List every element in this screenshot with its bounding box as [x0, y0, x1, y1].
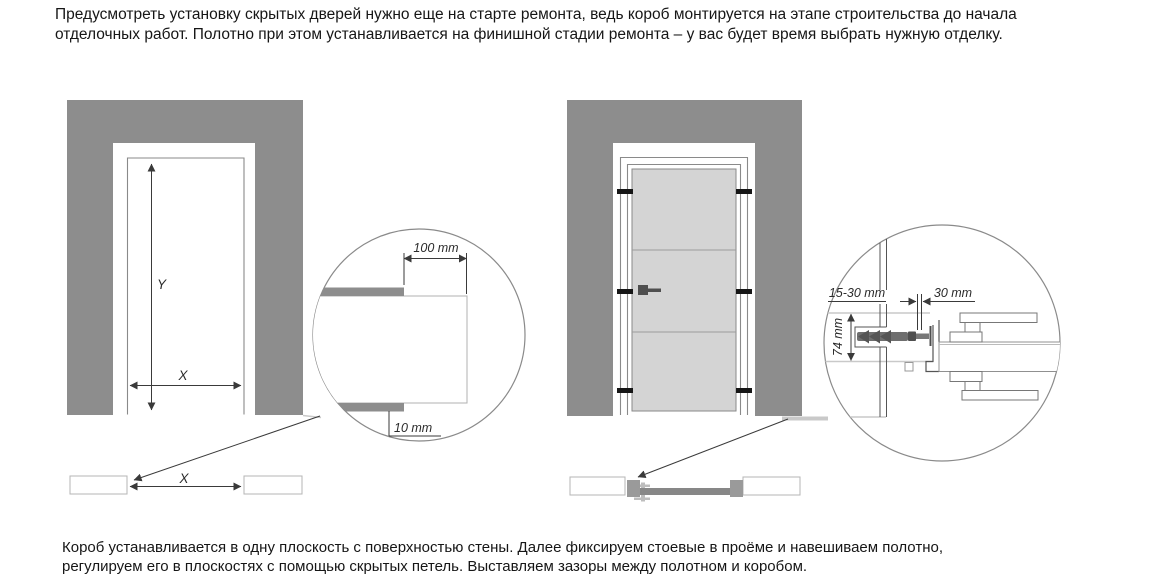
door-handle-stem [648, 289, 661, 293]
left-figure-plan: X [70, 416, 321, 495]
frame-width-label: 30 mm [934, 286, 972, 300]
left-detail-circle: 100 mm 10 mm [302, 229, 525, 441]
finish-layer-bottom [302, 403, 404, 412]
height-dimension-label: Y [157, 277, 167, 292]
clip-left-middle [617, 289, 633, 294]
clip-right-middle [736, 289, 752, 294]
mounting-gap-label: 15-30 mm [829, 286, 885, 300]
plan-jamb-right [730, 480, 743, 497]
hinge-arm-bottom [962, 391, 1038, 401]
footer-line-1: Короб устанавливается в одну плоскость с… [62, 538, 943, 557]
footer-line-2: регулируем его в плоскостях с помощью ск… [62, 557, 943, 576]
offset-dimension-label: 100 mm [413, 241, 458, 255]
plan-wall-right [743, 477, 800, 495]
floor-stub-right [782, 417, 828, 421]
screw-body [916, 334, 929, 340]
hinge-plate-bottom [950, 372, 982, 382]
clip-right-bottom [736, 388, 752, 393]
profile-notch [905, 363, 913, 372]
hinge-pivot-top [965, 323, 980, 333]
plan-width-dimension-label: X [178, 471, 189, 486]
leaf-section [939, 342, 1065, 372]
hinge-arm-top [960, 313, 1037, 323]
screw-head [908, 332, 916, 342]
door-installation-diagram: Y X 100 mm 10 mm X [0, 0, 1162, 577]
infographic-page: Предусмотреть установку скрытых дверей н… [0, 0, 1162, 577]
left-figure-elevation: Y X [67, 100, 303, 415]
detail-leader-arrow [134, 416, 320, 480]
hinge-plate-top [950, 332, 982, 342]
clip-left-top [617, 189, 633, 194]
right-figure-elevation [567, 100, 802, 416]
right-figure-plan [570, 417, 828, 502]
finish-layer-top [302, 288, 404, 297]
clip-left-bottom [617, 388, 633, 393]
wall-core-section [302, 296, 467, 403]
plan-wall-right [244, 476, 302, 494]
plan-wall-left [570, 477, 625, 495]
plan-door-leaf [640, 488, 730, 495]
plan-wall-left [70, 476, 127, 494]
finish-thickness-label: 10 mm [394, 421, 432, 435]
door-handle [638, 285, 648, 295]
left-detail-content [302, 288, 467, 412]
plan-jamb-left [627, 480, 640, 497]
hinge-pivot-bottom [965, 382, 980, 391]
frame-depth-label: 74 mm [831, 318, 845, 356]
clip-right-top [736, 189, 752, 194]
footer-paragraph: Короб устанавливается в одну плоскость с… [62, 538, 943, 576]
width-dimension-label: X [177, 368, 188, 383]
detail-leader-arrow-right [638, 419, 788, 477]
right-detail-circle: 15-30 mm 30 mm 74 mm [822, 225, 1065, 461]
